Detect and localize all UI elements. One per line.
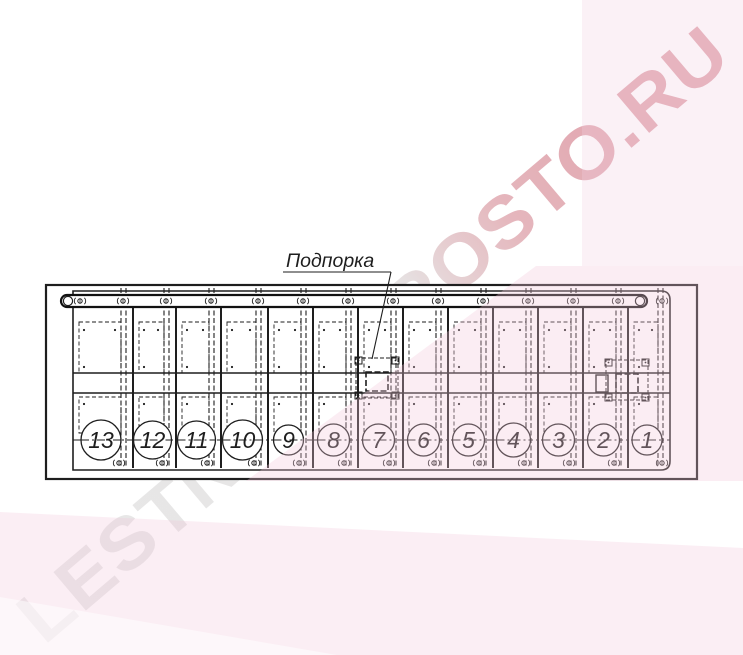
screw-point-dot: [368, 329, 370, 331]
screw-point-dot: [294, 329, 296, 331]
screw-point-dot: [83, 403, 85, 405]
screw-point-dot: [384, 329, 386, 331]
support-pad-dot: [395, 360, 397, 362]
screw-point-dot: [249, 329, 251, 331]
screw-point-dot: [231, 403, 233, 405]
screw-point-dot: [202, 329, 204, 331]
screw-point-dot: [413, 329, 415, 331]
screw-point-dot: [278, 366, 280, 368]
tread-number-group: 11: [178, 421, 216, 459]
tread-number: 12: [140, 427, 166, 453]
support-pad-dot: [358, 395, 360, 397]
screw-point-dot: [339, 329, 341, 331]
screw-point-dot: [186, 403, 188, 405]
screw-point-dot: [157, 329, 159, 331]
screw-point-dot: [143, 366, 145, 368]
screw-point-dot: [186, 329, 188, 331]
screw-point-dot: [83, 366, 85, 368]
screw-point-dot: [186, 366, 188, 368]
screw-point-dot: [278, 403, 280, 405]
tread-number-group: 13: [81, 420, 121, 460]
tread-number: 13: [88, 427, 114, 453]
screw-point-dot: [114, 329, 116, 331]
screw-point-dot: [231, 329, 233, 331]
bar-end-hole-icon: [63, 296, 72, 305]
screw-point-dot: [368, 366, 370, 368]
screw-point-dot: [231, 366, 233, 368]
screw-point-dot: [143, 403, 145, 405]
screw-point-dot: [323, 403, 325, 405]
screw-point-dot: [278, 329, 280, 331]
tread-number: 10: [230, 427, 256, 453]
stair-plan-drawing: LESTNICY-PROSTO.RU 13121110987654321 Под…: [0, 0, 743, 655]
support-pad-dot: [358, 360, 360, 362]
screw-point-dot: [143, 329, 145, 331]
tread-number-group: 10: [223, 420, 263, 460]
screw-point-dot: [323, 329, 325, 331]
screw-point-dot: [323, 366, 325, 368]
stair-drawing-canvas: LESTNICY-PROSTO.RU 13121110987654321 Под…: [0, 0, 743, 655]
support-callout-label: Подпорка: [286, 250, 374, 272]
tread-number-group: 12: [134, 421, 172, 459]
tread-number: 11: [185, 427, 209, 453]
screw-point-dot: [83, 329, 85, 331]
screw-point-dot: [429, 329, 431, 331]
